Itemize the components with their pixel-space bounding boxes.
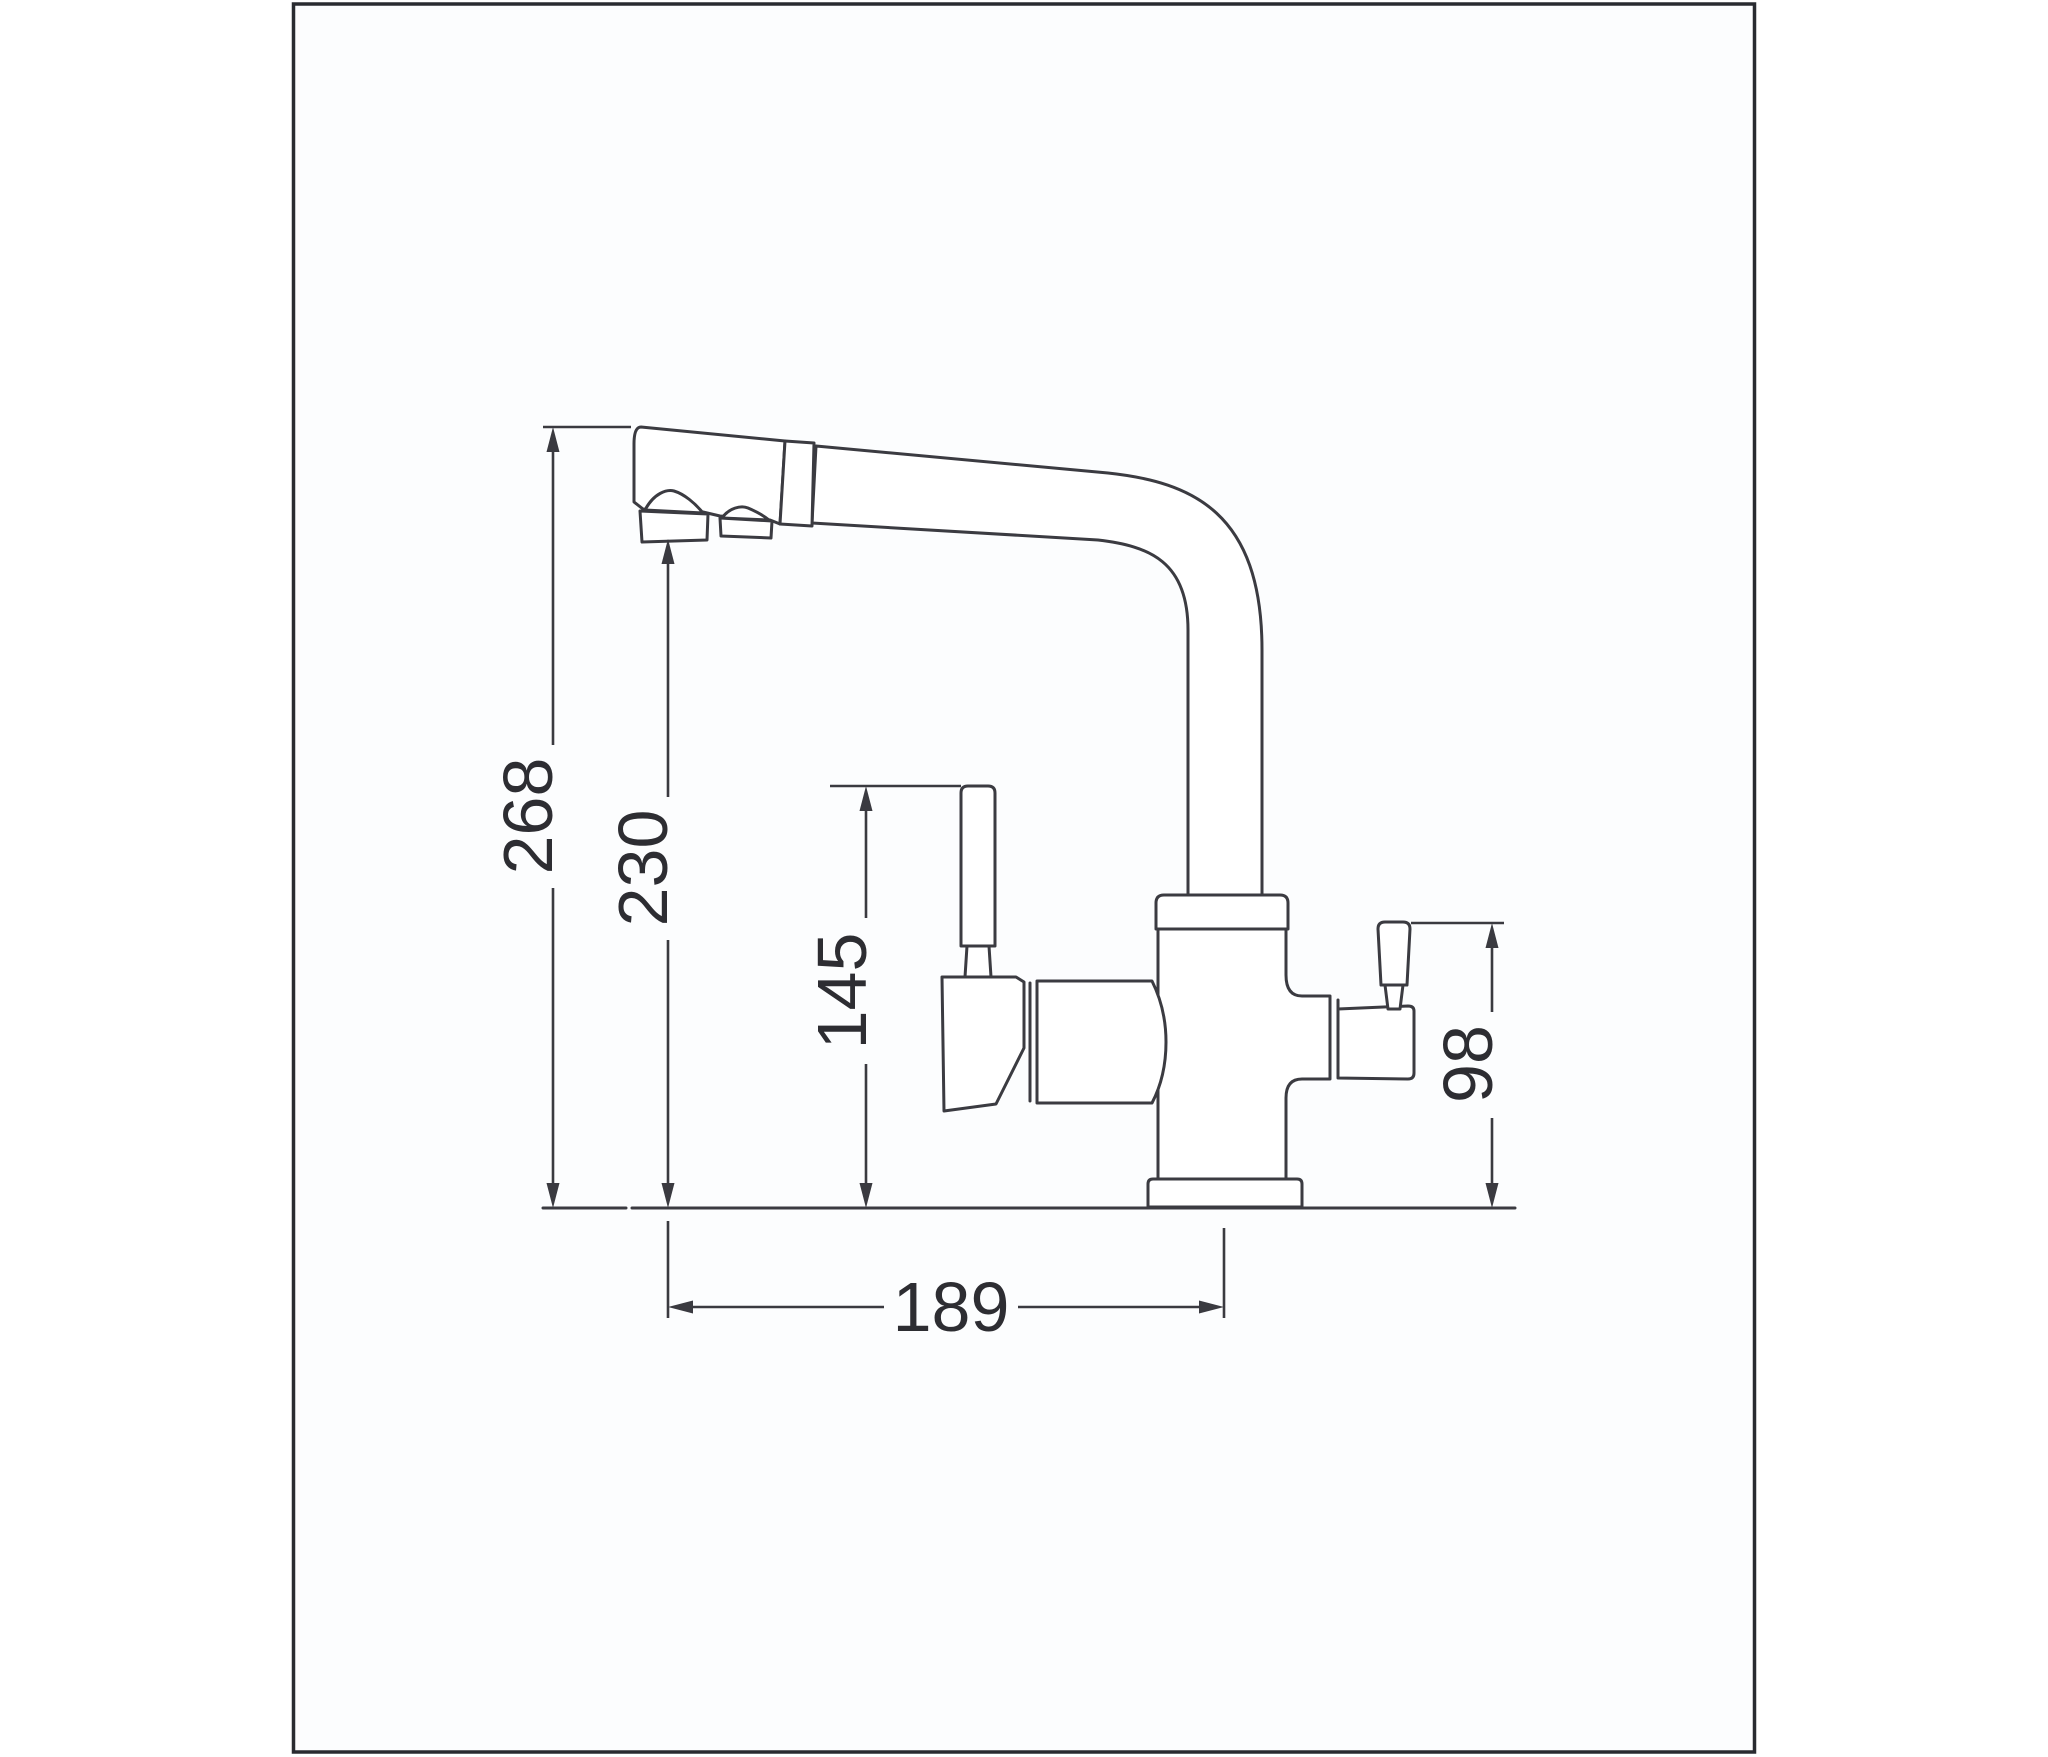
dim-label-268: 268: [489, 758, 567, 875]
cartridge-housing: [1037, 981, 1166, 1103]
faucet-technical-drawing: 268 230 145 98 189: [0, 0, 2048, 1757]
lever-neck: [965, 946, 991, 977]
page: 268 230 145 98 189: [0, 0, 2048, 1757]
body-collar: [1156, 895, 1288, 929]
spray-block-right: [720, 518, 772, 538]
base-plate: [1148, 1179, 1302, 1207]
dim-label-189: 189: [893, 1268, 1010, 1346]
dim-label-98: 98: [1429, 1025, 1507, 1103]
drawing-frame: [294, 4, 1755, 1752]
spray-head-collar: [780, 441, 814, 526]
outlet-block: [1338, 1006, 1414, 1079]
lever-rod: [961, 786, 995, 946]
dim-label-230: 230: [604, 810, 682, 927]
spray-block-left: [640, 511, 708, 542]
side-lever-neck: [1385, 985, 1403, 1009]
dim-label-145: 145: [803, 933, 881, 1050]
side-lever-rod: [1378, 922, 1410, 985]
